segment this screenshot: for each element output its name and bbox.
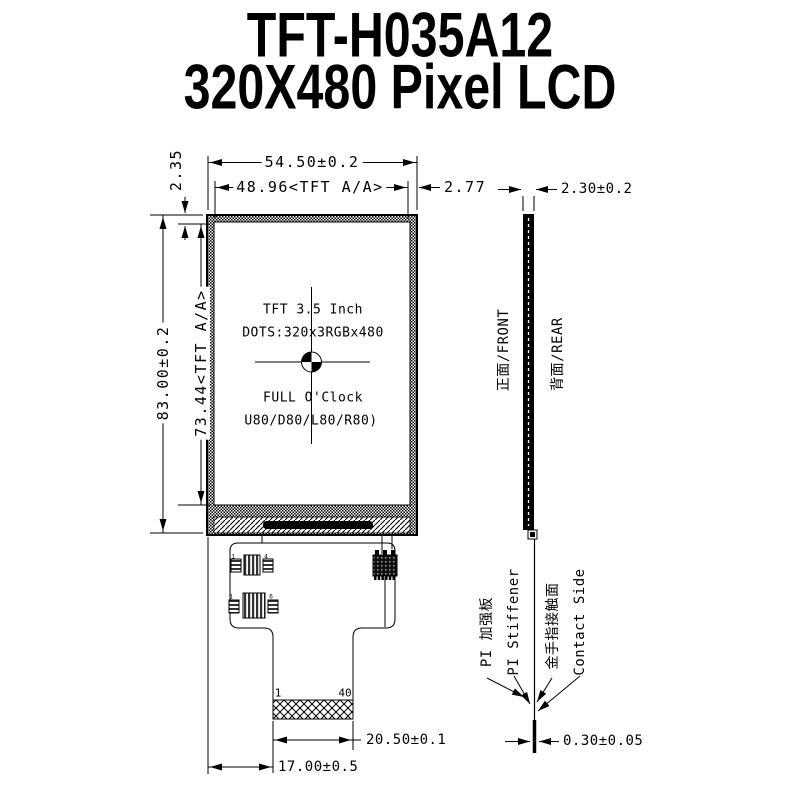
comp-marker: 1 bbox=[229, 594, 233, 601]
fpc-ic-component bbox=[373, 550, 397, 580]
screen-size-text: TFT 3.5 Inch bbox=[263, 303, 363, 318]
screen-viewing-text: FULL O'Clock bbox=[263, 391, 363, 406]
comp-marker: 6 bbox=[269, 594, 273, 601]
dim-panel-width: 54.50±0.2 bbox=[262, 153, 363, 171]
label-rear-face: 背面/REAR bbox=[547, 317, 567, 391]
page-title-resolution: 320X480 Pixel LCD bbox=[88, 61, 712, 114]
dim-connector-offset: 17.00±0.5 bbox=[278, 759, 358, 775]
screen-viewing-angles-text: U80/D80/L80/R80) bbox=[244, 414, 377, 429]
label-contact-en: Contact Side bbox=[572, 568, 588, 675]
dim-fpc-thickness: 0.30±0.05 bbox=[563, 733, 643, 749]
side-view-profile bbox=[523, 214, 537, 753]
dim-thickness: 2.30±0.2 bbox=[561, 181, 632, 197]
contact-strip bbox=[273, 700, 353, 719]
dim-active-height: 73.44<TFT A/A> bbox=[192, 286, 210, 439]
dim-top-margin: 2.35 bbox=[167, 149, 185, 191]
label-stiffener-cn: PI 加强板 bbox=[476, 597, 496, 667]
dim-panel-height: 83.00±0.2 bbox=[154, 323, 172, 424]
fpc-cable bbox=[229, 536, 397, 719]
screen-dots-text: DOTS:320x3RGBx480 bbox=[242, 326, 384, 341]
label-stiffener-en: PI Stiffener bbox=[506, 568, 522, 675]
pin-1-label: 1 bbox=[275, 687, 282, 700]
datasheet-drawing-page: TFT-H035A12 320X480 Pixel LCD 54.50±0.2 … bbox=[0, 0, 800, 800]
dim-active-width: 48.96<TFT A/A> bbox=[233, 178, 386, 196]
dim-connector-width: 20.50±0.1 bbox=[366, 732, 446, 748]
pin-40-label: 40 bbox=[338, 687, 351, 700]
comp-marker: 1 bbox=[231, 554, 235, 561]
label-front-face: 正面/FRONT bbox=[493, 309, 513, 392]
label-contact-cn: 金手指接触面 bbox=[542, 583, 562, 670]
dim-right-margin: 2.77 bbox=[444, 178, 486, 196]
bonding-bar bbox=[263, 521, 373, 529]
comp-marker: 4 bbox=[264, 554, 268, 561]
